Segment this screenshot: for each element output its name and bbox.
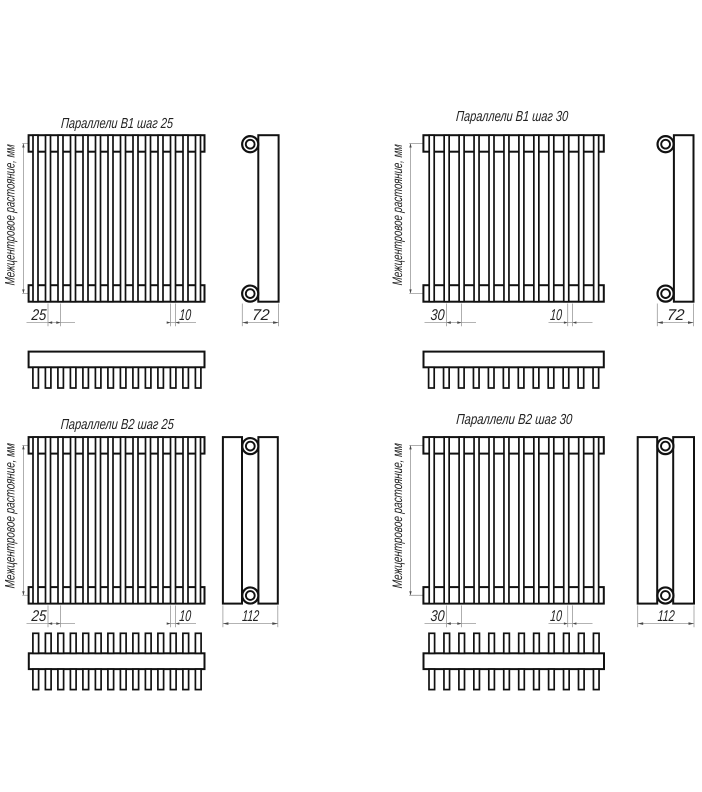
svg-text:Параллели В2 шаг 25: Параллели В2 шаг 25	[60, 417, 175, 433]
svg-text:10: 10	[179, 307, 192, 324]
svg-text:Межцентровое растояние, мм: Межцентровое растояние, мм	[389, 442, 405, 589]
svg-text:30: 30	[430, 307, 445, 324]
svg-text:10: 10	[179, 608, 192, 625]
svg-text:10: 10	[550, 608, 563, 625]
svg-text:30: 30	[430, 608, 445, 625]
svg-text:Параллели В1 шаг 30: Параллели В1 шаг 30	[456, 109, 569, 125]
svg-text:10: 10	[550, 307, 563, 324]
svg-text:112: 112	[657, 608, 675, 625]
svg-text:112: 112	[242, 608, 260, 625]
svg-text:Межцентровое растояние, мм: Межцентровое растояние, мм	[1, 143, 17, 285]
svg-text:Межцентровое растояние, мм: Межцентровое растояние, мм	[389, 143, 405, 285]
svg-text:Параллели В2 шаг 30: Параллели В2 шаг 30	[456, 412, 573, 428]
svg-text:25: 25	[30, 608, 47, 625]
svg-text:Межцентровое растояние, мм: Межцентровое растояние, мм	[1, 442, 17, 589]
svg-text:25: 25	[30, 307, 47, 324]
svg-text:72: 72	[666, 307, 685, 324]
svg-text:72: 72	[251, 307, 270, 324]
svg-text:Параллели В1 шаг 25: Параллели В1 шаг 25	[60, 116, 174, 132]
